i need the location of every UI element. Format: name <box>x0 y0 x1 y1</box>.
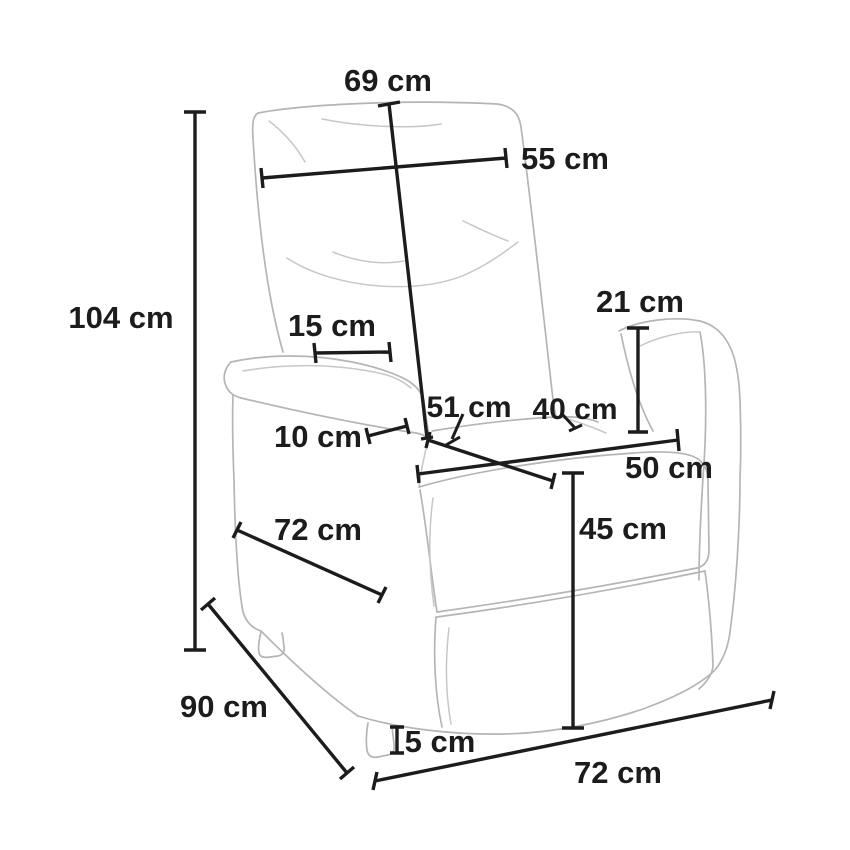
dim-line-overall-height <box>184 112 206 650</box>
label-backrest-width: 55 cm <box>521 141 609 176</box>
backrest-seam <box>322 119 441 127</box>
right-armrest-roll-seam <box>640 332 700 346</box>
label-base-front-width: 72 cm <box>574 755 662 790</box>
right-side-edge <box>715 478 740 670</box>
label-backrest-length: 69 cm <box>344 63 432 98</box>
backrest-mid-seam <box>287 242 518 287</box>
label-foot-height: 5 cm <box>405 724 476 759</box>
label-armrest-top-length: 15 cm <box>288 308 376 343</box>
label-overall-depth: 90 cm <box>180 689 268 724</box>
label-seat-inner-width: 40 cm <box>532 393 617 426</box>
dimension-labels: 104 cm 69 cm 55 cm 15 cm 10 cm 21 cm 51 … <box>68 63 713 790</box>
label-base-side-depth: 72 cm <box>274 512 362 547</box>
back-left-foot <box>259 632 285 657</box>
backrest-left-edge <box>253 113 283 352</box>
left-side-bottom <box>261 631 358 716</box>
label-seat-front-width: 50 cm <box>625 450 713 485</box>
label-seat-height: 45 cm <box>579 511 667 546</box>
label-seat-depth: 51 cm <box>426 391 511 424</box>
backrest-top-edge <box>258 102 497 113</box>
dimension-lines <box>184 102 774 790</box>
armchair-dimension-diagram: 104 cm 69 cm 55 cm 15 cm 10 cm 21 cm 51 … <box>0 0 850 850</box>
left-side-edge <box>233 395 261 631</box>
left-armrest-seam <box>243 366 411 388</box>
label-armrest-height: 21 cm <box>596 284 684 319</box>
dim-line-armrest-top-length <box>314 342 391 363</box>
dim-line-backrest-width <box>261 148 507 188</box>
front-upper-bottom <box>437 568 697 612</box>
label-armrest-width: 10 cm <box>274 419 362 454</box>
diagram-canvas: 104 cm 69 cm 55 cm 15 cm 10 cm 21 cm 51 … <box>0 0 850 850</box>
backrest-seam <box>269 121 305 162</box>
front-lower-top <box>437 571 705 617</box>
left-armrest-cap <box>224 362 241 398</box>
front-lower-right <box>699 571 713 689</box>
front-upper-left <box>420 490 437 612</box>
dim-line-backrest-length <box>378 102 433 439</box>
backrest-seam <box>333 252 404 263</box>
front-lower-seam <box>447 628 451 724</box>
backrest-seam <box>463 221 508 241</box>
label-overall-height: 104 cm <box>68 300 173 335</box>
front-lower-left <box>435 617 442 727</box>
